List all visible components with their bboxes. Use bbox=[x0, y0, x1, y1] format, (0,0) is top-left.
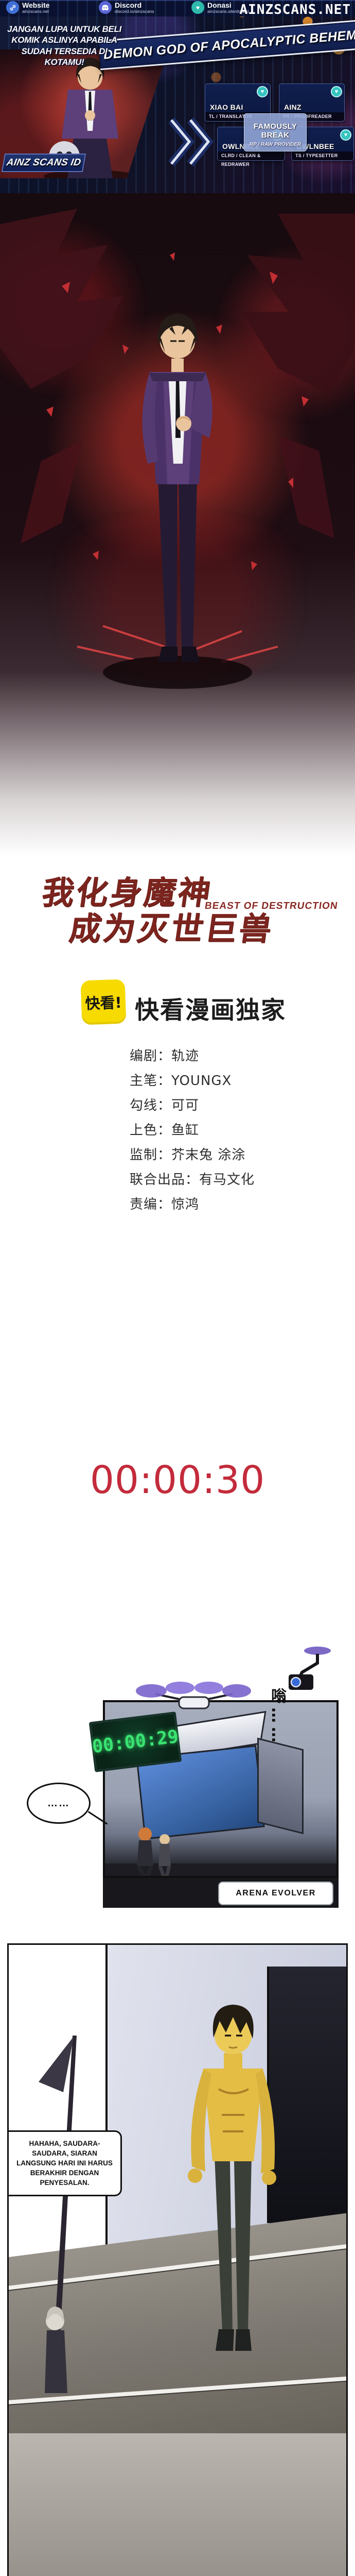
scanlation-header-banner: JANGAN LUPA UNTUK BELI KOMIK ASLINYA APA… bbox=[0, 0, 355, 193]
credit-role: TS / TYPESETTER bbox=[292, 151, 353, 160]
arena-figures bbox=[105, 1815, 336, 1878]
chevrons-decoration bbox=[169, 117, 215, 166]
heart-icon: ♥ bbox=[331, 86, 342, 97]
countdown-timer: 00:00:30 bbox=[0, 1458, 355, 1502]
title-chinese-line2: 成为灭世巨兽 bbox=[67, 913, 276, 945]
credit-line: 责编：惊鸿 bbox=[130, 1194, 255, 1219]
heart-icon: ♥ bbox=[257, 86, 268, 97]
blade-bearer-figure bbox=[23, 2032, 95, 2424]
discord-icon bbox=[99, 1, 112, 14]
credit-line: 勾线：可可 bbox=[130, 1095, 255, 1120]
site-name[interactable]: AINZSCANS.NET bbox=[240, 2, 351, 18]
kuaikan-badge: 快看! bbox=[81, 979, 127, 1025]
screen-timer-text: 00:00:29 bbox=[91, 1726, 180, 1757]
link-label: Website bbox=[22, 2, 49, 9]
protagonist-purple-suit bbox=[100, 309, 255, 701]
credit-name: FAMOUSLY BREAK bbox=[244, 122, 306, 140]
arena-countdown-screen: 00:00:29 bbox=[89, 1711, 182, 1772]
heart-icon: ♥ bbox=[191, 1, 204, 14]
credit-name: AINZ bbox=[284, 103, 301, 111]
credit-line: 联合出品：有马文化 bbox=[130, 1170, 255, 1194]
heart-icon: ♥ bbox=[340, 129, 351, 141]
camera-arm bbox=[280, 1642, 338, 1700]
credit-role: CLRD / CLEAN & REDRAWER bbox=[218, 151, 285, 160]
credit-line: 监制：芥末兔 涂涂 bbox=[130, 1145, 255, 1170]
ellipsis-text: …… bbox=[47, 1798, 70, 1809]
series-title-text: DEMON GOD OF APOCALYPTIC BEHEMOTH bbox=[103, 25, 355, 62]
discord-link[interactable]: Discord discord.io/ainzscans bbox=[99, 1, 154, 14]
arena-evolver-text: ARENA EVOLVER bbox=[236, 1889, 316, 1898]
production-credits: 编剧：轨迹 主笔：YOUNGX 勾线：可可 上色：鱼缸 监制：芥末兔 涂涂 联合… bbox=[130, 1046, 255, 1219]
ainz-scans-logo: AINZ SCANS ID bbox=[2, 154, 86, 172]
dialogue-announcer-text: HAHAHA, SAUDARA-SAUDARA, SIARAN LANGSUNG… bbox=[16, 2140, 113, 2187]
credit-line: 主笔：YOUNGX bbox=[130, 1071, 255, 1095]
website-link[interactable]: Website ainzscans.net bbox=[6, 1, 49, 14]
credit-role: RP / RAW PROVIDER bbox=[244, 142, 306, 147]
link-url: discord.io/ainzscans bbox=[115, 9, 154, 14]
link-icon bbox=[6, 1, 19, 14]
yellow-evolver-character bbox=[158, 2002, 302, 2414]
link-label: Discord bbox=[115, 2, 154, 9]
kuaikan-exclusive-label: 快看漫画独家 bbox=[135, 990, 286, 1026]
credit-line: 上色：鱼缸 bbox=[130, 1120, 255, 1145]
sfx-hum: 嗡…… bbox=[265, 1688, 288, 1783]
comic-page: JANGAN LUPA UNTUK BELI KOMIK ASLINYA APA… bbox=[0, 0, 355, 2576]
series-title-banner: DEMON GOD OF APOCALYPTIC BEHEMOTH bbox=[98, 18, 355, 70]
arena-evolver-label: ARENA EVOLVER bbox=[218, 1882, 333, 1905]
cover-artwork bbox=[0, 193, 355, 876]
title-chinese-line1: 我化身魔神 bbox=[40, 877, 215, 909]
drone bbox=[135, 1675, 252, 1716]
comic-panel-evolver: HAHAHA, SAUDARA-SAUDARA, SIARAN LANGSUNG… bbox=[7, 1943, 348, 2576]
ainz-scans-logo-text: AINZ SCANS ID bbox=[6, 157, 82, 168]
kuaikan-badge-text: 快看! bbox=[85, 991, 122, 1013]
buy-original-notice: JANGAN LUPA UNTUK BELI KOMIK ASLINYA APA… bbox=[3, 24, 126, 67]
dialogue-box-announcer: HAHAHA, SAUDARA-SAUDARA, SIARAN LANGSUNG… bbox=[9, 2130, 122, 2196]
header-footer-bar: Website ainzscans.net Discord discord.io… bbox=[0, 0, 355, 16]
speech-bubble-ellipsis: …… bbox=[27, 1783, 91, 1824]
arena-floor-lower bbox=[9, 2433, 348, 2576]
credit-line: 编剧：轨迹 bbox=[130, 1046, 255, 1071]
link-url: ainzscans.net bbox=[22, 9, 49, 14]
credit-card-raw-provider: FAMOUSLY BREAK RP / RAW PROVIDER bbox=[244, 113, 307, 151]
credit-name: XIAO BAI bbox=[210, 103, 243, 111]
